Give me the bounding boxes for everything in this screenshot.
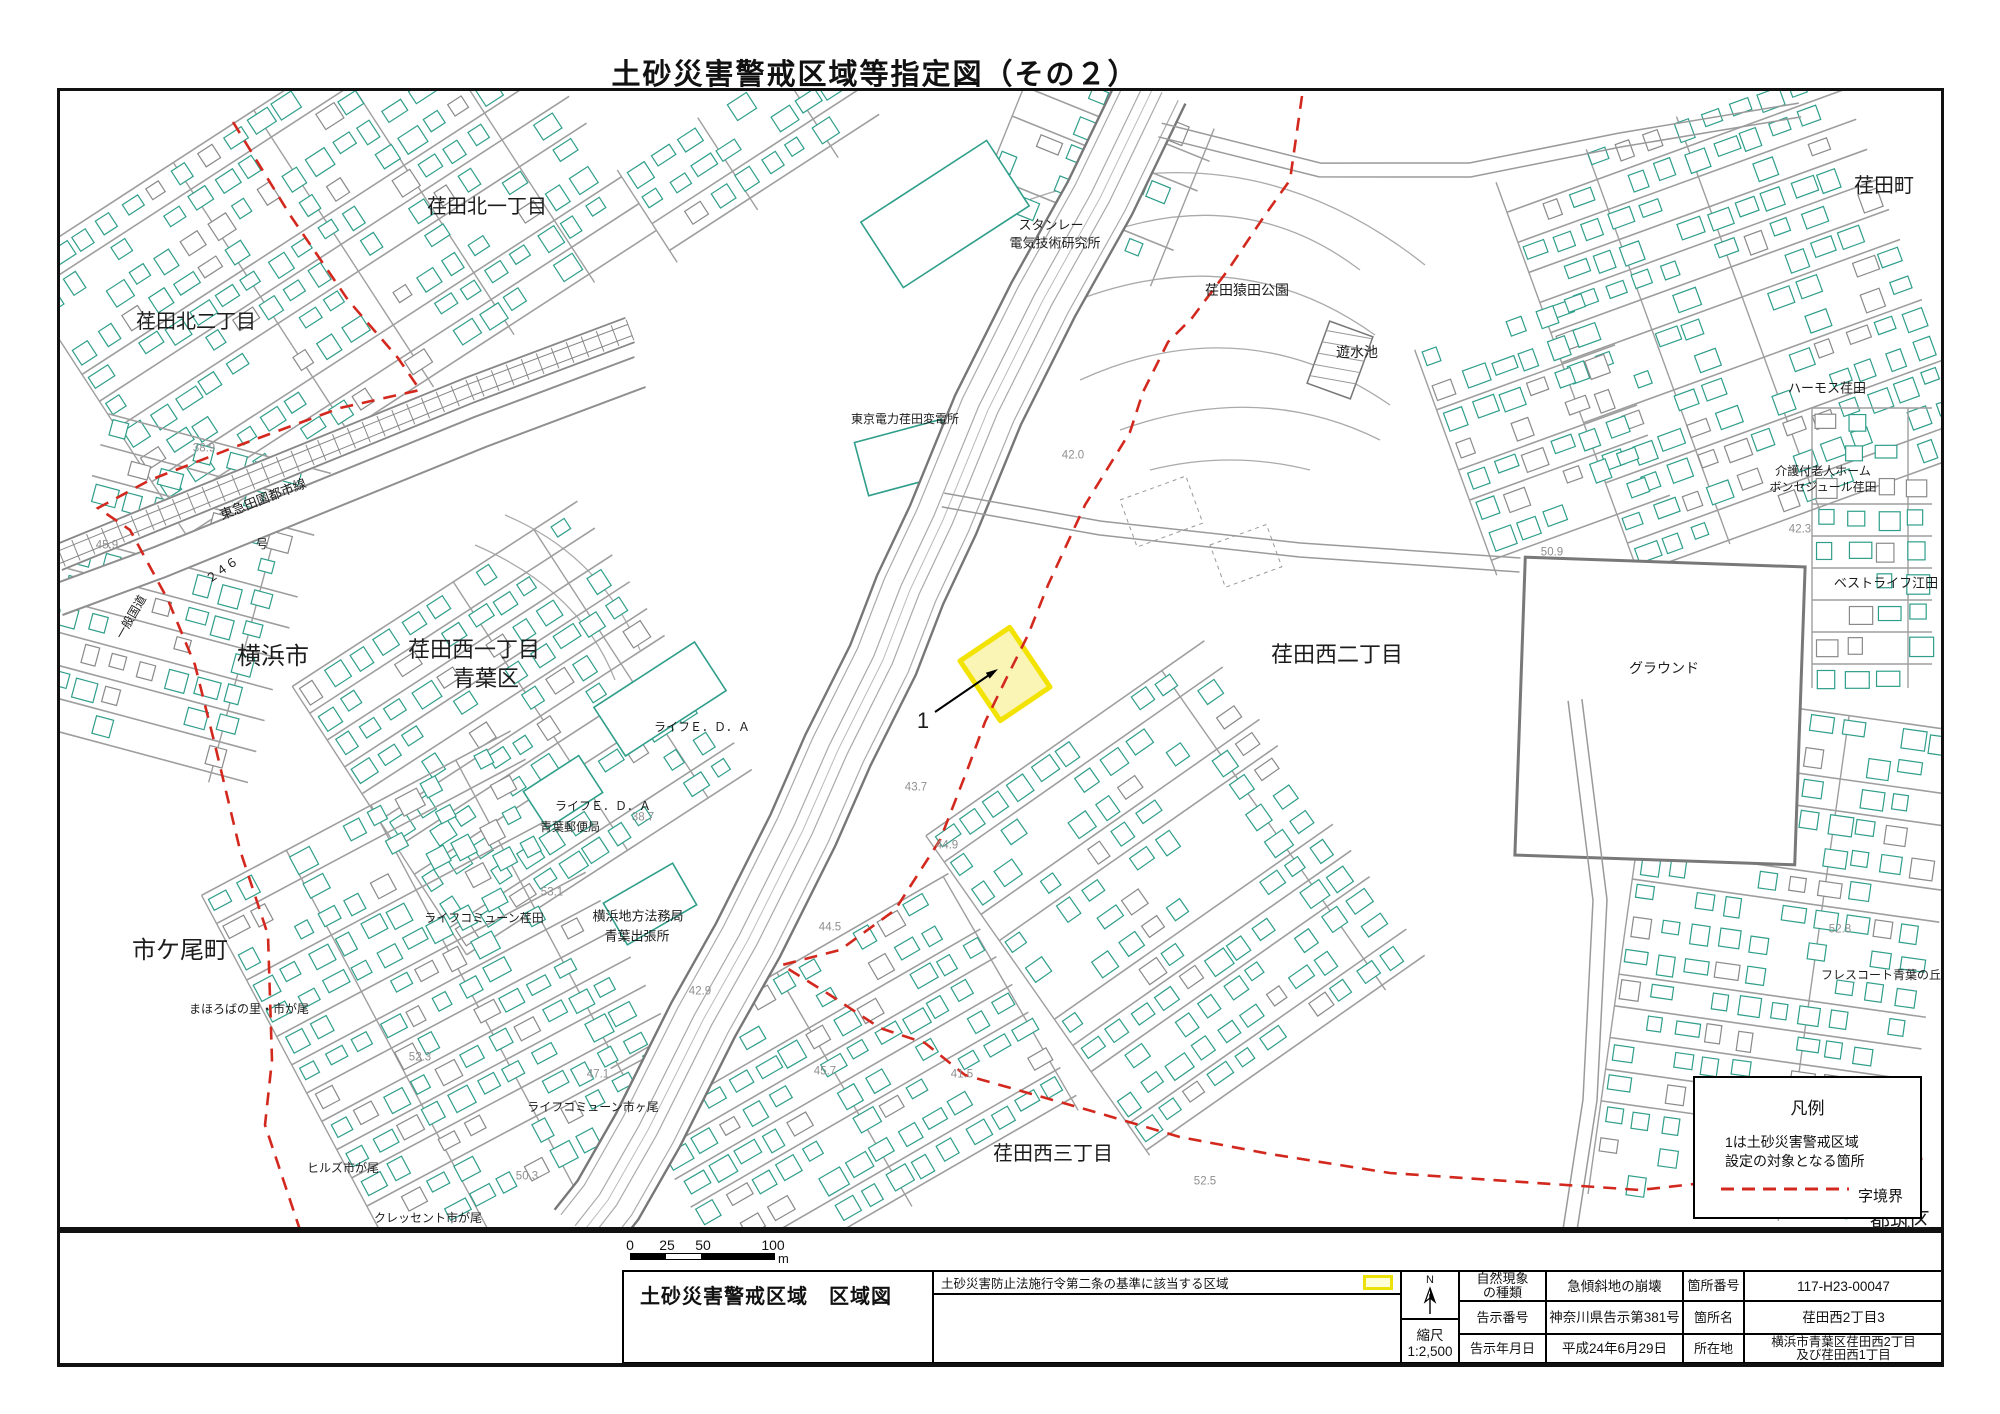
warning-zone-swatch (1363, 1275, 1393, 1290)
sheet-right-border (1941, 1230, 1944, 1367)
scalebar-tick: 50 (695, 1237, 711, 1253)
phenomenon-label-cell: 自然現象 の種類 (1460, 1272, 1547, 1302)
map-area-label: グラウンド (1629, 661, 1699, 675)
sheet-left-border (57, 1230, 60, 1367)
warning-zone-highlight (960, 627, 1050, 720)
vacant-parcel (1120, 476, 1203, 547)
notice-no-label-cell: 告示番号 (1460, 1302, 1547, 1335)
map-area-label: 市ケ尾町 (132, 939, 228, 963)
criteria-cell: 土砂災害防止法施行令第二条の基準に該当する区域 (934, 1272, 1402, 1295)
elevation-label: 52.3 (409, 1052, 431, 1064)
map-area-label: 東京電力荏田変電所 (851, 413, 959, 425)
site-no-value-cell: 117-H23-00047 (1745, 1272, 1942, 1302)
local-road (942, 493, 1521, 572)
notice-date-label-cell: 告示年月日 (1460, 1335, 1547, 1362)
elevation-label: 44.9 (936, 840, 958, 852)
notice-no-value-cell: 神奈川県告示第381号 (1547, 1302, 1684, 1335)
legend-box: 凡例 1は土砂災害警戒区域 設定の対象となる箇所 字境界 (1693, 1076, 1922, 1219)
scalebar-tick: 0 (626, 1237, 634, 1253)
ground-field (1515, 557, 1805, 865)
map-area-label: 荏田西二丁目 (1271, 644, 1403, 666)
map-area-label: 荏田町 (1854, 176, 1914, 196)
map-area-label: 青葉出張所 (604, 930, 669, 943)
map-area-label: ヒルズ市が尾 (307, 1162, 379, 1174)
map-area-label: 荏田北二丁目 (136, 312, 256, 332)
elevation-label: 50.9 (1541, 547, 1563, 559)
map-canvas (60, 91, 1941, 1227)
elevation-label: 42.3 (1789, 524, 1811, 536)
scalebar (630, 1253, 775, 1260)
map-area-label: スタンレー (1018, 219, 1083, 232)
phenomenon-value-cell: 急傾斜地の崩壊 (1547, 1272, 1684, 1302)
title-block: 土砂災害警戒区域 区域図 土砂災害防止法施行令第二条の基準に該当する区域 N 縮… (622, 1270, 1944, 1364)
map-area-label: クレッセント市が尾 (374, 1212, 482, 1224)
map-area-label: まほろばの里・市が尾 (189, 1003, 309, 1015)
location-value-cell: 横浜市青葉区荏田西2丁目 及び荏田西1丁目 (1745, 1335, 1942, 1362)
page-title: 土砂災害警戒区域等指定図（その２） (611, 51, 1138, 93)
legend-boundary-line-icon (1719, 1186, 1851, 1192)
north-label: N (1426, 1274, 1434, 1286)
elevation-label: 45.7 (814, 1066, 836, 1078)
scalebar-unit: m (778, 1251, 789, 1266)
sheet-bottom-border (57, 1363, 1944, 1367)
elevation-label: 52.5 (1194, 1176, 1216, 1188)
map-area-label: 電気技術研究所 (1009, 237, 1100, 250)
map-area-label: ライフコミューン荏田 (424, 912, 543, 924)
elevation-label: 53.1 (541, 887, 563, 899)
sheet-name-cell: 土砂災害警戒区域 区域図 (624, 1272, 934, 1362)
map-area-label: ボンセジュール荏田 (1769, 481, 1876, 493)
site-name-label-cell: 箇所名 (1684, 1302, 1745, 1335)
site-no-label-cell: 箇所番号 (1684, 1272, 1745, 1302)
criteria-empty-cell (934, 1295, 1402, 1362)
site-name-value-cell: 荏田西2丁目3 (1745, 1302, 1942, 1335)
map-bottom-border (57, 1230, 1944, 1233)
map-area-label: 横浜地方法務局 (592, 910, 683, 923)
map-area-label: フレスコート青葉の丘 (1821, 969, 1941, 981)
elevation-label: 52.8 (1829, 924, 1851, 936)
map-area-label: 青葉郵便局 (540, 821, 600, 833)
map-area-label: ライフＥ．Ｄ．Ａ (654, 721, 750, 733)
north-arrow-cell: N (1402, 1272, 1460, 1320)
notice-date-value-cell: 平成24年6月29日 (1547, 1335, 1684, 1362)
map-area-label: 荏田西一丁目 (408, 639, 540, 661)
elevation-label: 42.0 (1062, 450, 1084, 462)
map-area-label: 荏田猿田公園 (1205, 283, 1289, 297)
map-area-label: 介護付老人ホーム (1775, 465, 1871, 477)
site-marker-label: 1 (917, 710, 929, 732)
map-area-label: 横浜市 (237, 645, 309, 669)
elevation-label: 47.1 (587, 1069, 609, 1081)
map-area-label: 号 (256, 538, 268, 550)
scalebar-tick: 25 (659, 1237, 675, 1253)
elevation-label: 38.7 (632, 812, 654, 824)
elevation-label: 43.7 (905, 782, 927, 794)
north-arrow-icon (1418, 1286, 1442, 1316)
legend-note: 1は土砂災害警戒区域 設定の対象となる箇所 (1725, 1133, 1865, 1171)
elevation-label: 45.9 (96, 540, 118, 552)
location-label-cell: 所在地 (1684, 1335, 1745, 1362)
building-cluster (1415, 285, 1676, 576)
elevation-label: 50.3 (516, 1171, 538, 1183)
map-sheet: 土砂災害警戒区域等指定図（その２） 荏田北一丁目荏田町荏田北二丁目スタンレー電気… (0, 0, 2000, 1414)
map-area-label: 青葉区 (453, 668, 519, 690)
legend-title: 凡例 (1695, 1094, 1920, 1119)
map-area-label: 荏田北一丁目 (427, 197, 547, 217)
map-area-label: ベストライフ江田 (1834, 577, 1938, 590)
legend-boundary-label: 字境界 (1858, 1185, 1903, 1206)
elevation-label: 41.5 (951, 1069, 973, 1081)
map-area-label: ハーモス荏田 (1788, 382, 1866, 395)
retention-pond (1307, 321, 1373, 399)
elevation-label: 42.9 (689, 986, 711, 998)
scale-cell: 縮尺 1:2,500 (1402, 1320, 1460, 1362)
map-area-label: ライフＥ．Ｄ．Ａ (555, 800, 651, 812)
building-cluster (617, 91, 887, 262)
map-area-label: ライフコミューン市ヶ尾 (527, 1101, 658, 1113)
map-area-label: 遊水池 (1336, 345, 1378, 359)
map-area-label: 荏田西三丁目 (993, 1144, 1113, 1164)
elevation-label: 44.5 (819, 922, 841, 934)
elevation-label: 38.9 (193, 443, 215, 455)
